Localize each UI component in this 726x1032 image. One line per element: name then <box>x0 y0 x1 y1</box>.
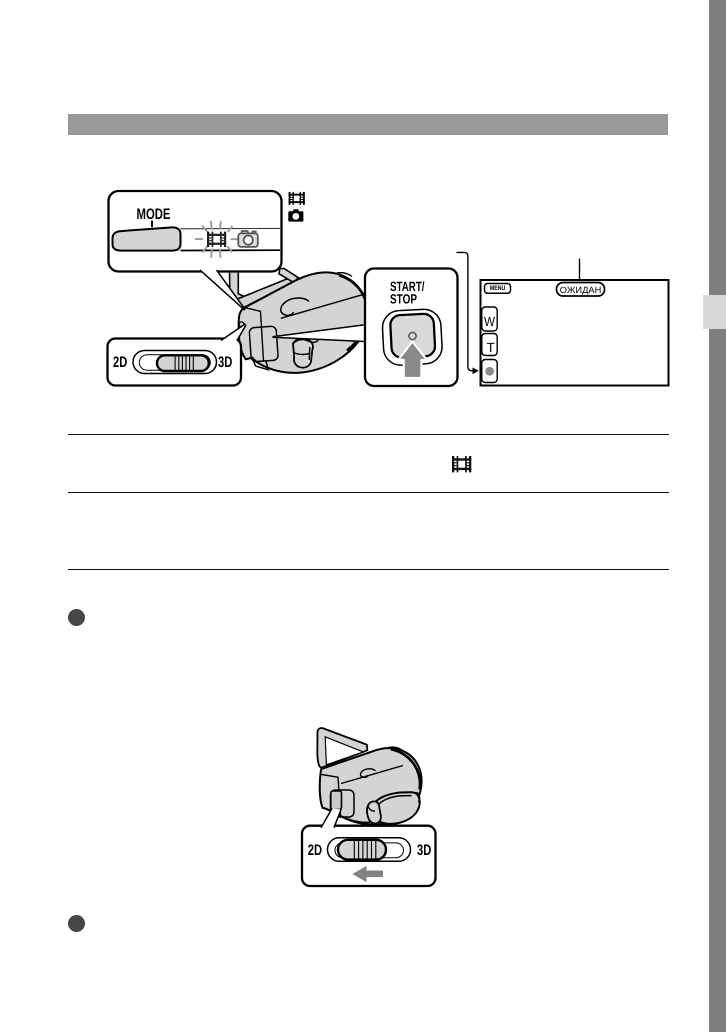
svg-text:STOP: STOP <box>390 291 417 306</box>
svg-text:2D: 2D <box>308 842 322 859</box>
svg-text:3D: 3D <box>218 354 232 371</box>
svg-text:MODE: MODE <box>137 206 171 223</box>
svg-text:MENU: MENU <box>490 285 506 292</box>
svg-text:2D: 2D <box>113 354 127 371</box>
svg-text:ОЖИДАН: ОЖИДАН <box>560 285 602 295</box>
svg-text:3D: 3D <box>417 842 431 859</box>
svg-text:T: T <box>487 340 495 355</box>
svg-text:W: W <box>484 314 495 329</box>
